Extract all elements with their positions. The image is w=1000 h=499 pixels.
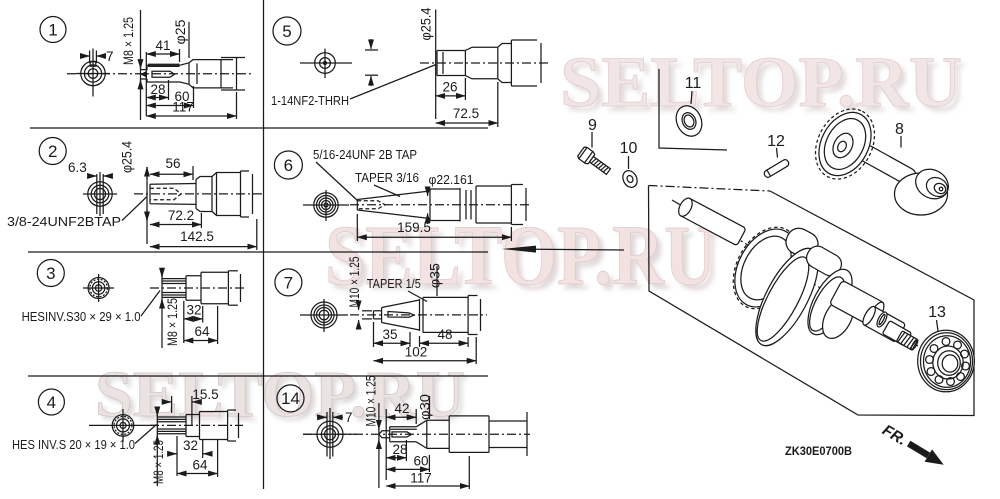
svg-text:7: 7	[106, 49, 114, 64]
svg-text:M10 × 1.25: M10 × 1.25	[364, 376, 379, 427]
svg-text:φ22.161: φ22.161	[429, 172, 474, 187]
svg-text:64: 64	[192, 458, 208, 473]
svg-text:35: 35	[382, 327, 397, 342]
svg-text:3/8-24UNF2BTAP: 3/8-24UNF2BTAP	[7, 214, 121, 229]
svg-text:TAPER 1/5: TAPER 1/5	[367, 276, 421, 291]
svg-text:3: 3	[46, 264, 55, 283]
svg-text:M8 × 1.25: M8 × 1.25	[165, 298, 180, 346]
svg-text:TAPER 3/16: TAPER 3/16	[355, 170, 419, 185]
svg-text:φ25.4: φ25.4	[419, 7, 434, 40]
svg-text:5: 5	[282, 22, 291, 41]
svg-text:32: 32	[183, 438, 198, 453]
svg-text:HESINV.S30 × 29 × 1.0: HESINV.S30 × 29 × 1.0	[22, 309, 141, 324]
svg-text:9: 9	[588, 117, 597, 134]
svg-text:60: 60	[413, 454, 428, 469]
svg-text:SELTOP.RU: SELTOP.RU	[560, 42, 962, 122]
svg-text:72.2: 72.2	[168, 208, 194, 223]
svg-text:48: 48	[437, 327, 452, 342]
svg-text:13: 13	[928, 304, 946, 321]
svg-text:2: 2	[48, 142, 57, 161]
svg-text:7: 7	[345, 410, 353, 425]
svg-text:8: 8	[895, 121, 904, 138]
svg-text:26: 26	[442, 80, 457, 95]
svg-text:32: 32	[186, 303, 201, 318]
svg-text:1: 1	[48, 21, 57, 40]
svg-text:φ30: φ30	[418, 394, 433, 420]
svg-text:15.5: 15.5	[192, 387, 218, 402]
svg-text:M8 × 1.25: M8 × 1.25	[151, 440, 166, 484]
svg-text:64: 64	[194, 324, 210, 339]
svg-text:72.5: 72.5	[453, 106, 479, 121]
svg-text:10: 10	[620, 140, 638, 157]
svg-text:SELTOP.RU: SELTOP.RU	[95, 358, 465, 431]
svg-text:28: 28	[150, 82, 165, 97]
svg-text:142.5: 142.5	[180, 229, 214, 244]
svg-text:M10 × 1.25: M10 × 1.25	[347, 257, 362, 308]
svg-text:6.3: 6.3	[68, 160, 87, 175]
svg-text:117: 117	[410, 471, 432, 486]
svg-text:ZK30E0700B: ZK30E0700B	[785, 444, 852, 458]
svg-text:41: 41	[155, 38, 170, 53]
svg-text:14: 14	[281, 389, 300, 408]
svg-text:56: 56	[165, 156, 180, 171]
svg-text:159.5: 159.5	[397, 220, 431, 235]
svg-text:12: 12	[767, 133, 785, 150]
svg-text:1-14NF2-THRH: 1-14NF2-THRH	[271, 93, 349, 108]
svg-text:φ25.4: φ25.4	[120, 141, 135, 173]
svg-text:28: 28	[392, 442, 407, 457]
svg-text:102: 102	[405, 345, 428, 360]
svg-text:M8 × 1.25: M8 × 1.25	[121, 17, 136, 65]
svg-text:5/16-24UNF 2B TAP: 5/16-24UNF 2B TAP	[313, 147, 417, 162]
svg-text:117: 117	[172, 100, 194, 115]
svg-text:HES INV.S 20 × 19 × 1.0: HES INV.S 20 × 19 × 1.0	[12, 437, 135, 452]
svg-text:6: 6	[284, 156, 293, 175]
svg-text:42: 42	[394, 401, 409, 416]
svg-text:11: 11	[685, 75, 702, 92]
svg-text:4: 4	[47, 393, 56, 412]
svg-text:φ25: φ25	[173, 20, 188, 45]
svg-text:φ35: φ35	[427, 263, 442, 288]
svg-text:7: 7	[284, 273, 293, 292]
